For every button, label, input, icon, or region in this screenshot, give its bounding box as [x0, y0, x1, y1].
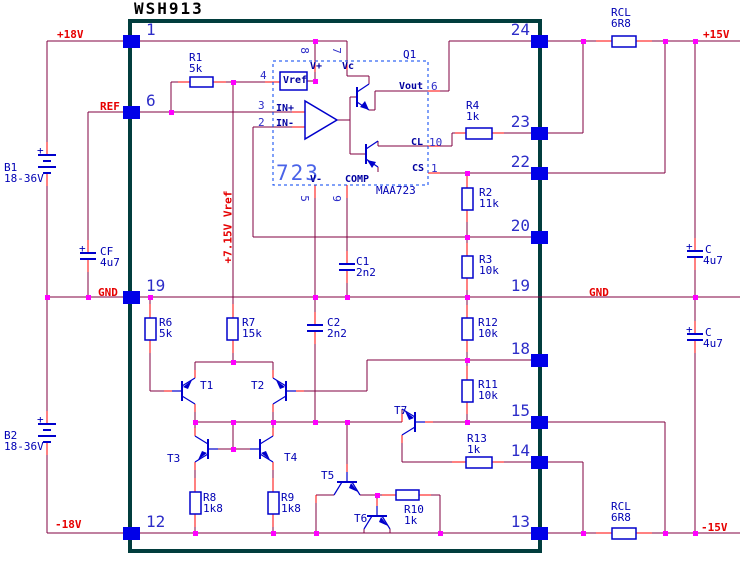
- ic-pin10-number: 10: [429, 137, 442, 148]
- junction-dot: [375, 493, 380, 498]
- junction-dot: [465, 171, 470, 176]
- junction-dot: [231, 360, 236, 365]
- opamp-triangle: [305, 101, 337, 139]
- battery-b2-plus: +: [37, 414, 44, 425]
- junction-dot: [663, 39, 668, 44]
- pin-square-18: [531, 354, 548, 367]
- pin-square-12: [123, 527, 140, 540]
- junction-dot: [271, 531, 276, 536]
- capacitor-c-upper-plus: +: [686, 241, 693, 252]
- pin-square-19-left: [123, 291, 140, 304]
- junction-dot: [231, 447, 236, 452]
- transistor-t4-label: T4: [284, 452, 297, 463]
- ic-vref-block-label: Vref: [283, 76, 307, 86]
- junction-dot: [313, 79, 318, 84]
- resistor-r2-value: 11k: [479, 198, 499, 209]
- ic-pin-vc-label: Vc: [342, 62, 354, 72]
- ic-pin-inminus-label: IN-: [276, 119, 294, 129]
- rail-label-plus15v: +15V: [703, 29, 730, 40]
- junction-dot: [345, 295, 350, 300]
- pin-number-6: 6: [146, 93, 156, 109]
- capacitor-c1-value: 2n2: [356, 267, 376, 278]
- transistor-t1: [172, 378, 195, 404]
- resistor-r3-value: 10k: [479, 265, 499, 276]
- capacitor-c2-value: 2n2: [327, 328, 347, 339]
- schematic-wsh913: WSH913 +18V REF GND -18V +15V GND -15V +…: [0, 0, 747, 567]
- junction-dot: [693, 39, 698, 44]
- pin-number-19-left: 19: [146, 278, 165, 294]
- pin-number-22: 22: [504, 154, 530, 170]
- rail-label-plus18v: +18V: [57, 29, 84, 40]
- pin-number-12: 12: [146, 514, 165, 530]
- pin-square-14: [531, 456, 548, 469]
- schematic-title: WSH913: [134, 1, 204, 17]
- resistor-r11: [462, 380, 473, 402]
- pin-square-23: [531, 127, 548, 140]
- junction-dot: [231, 80, 236, 85]
- ic-pin2-number: 2: [258, 117, 265, 128]
- junction-dot: [345, 420, 350, 425]
- junction-dot: [231, 420, 236, 425]
- junction-dot: [581, 39, 586, 44]
- pin-number-20: 20: [504, 218, 530, 234]
- junction-dot: [313, 295, 318, 300]
- transistor-t4: [250, 436, 273, 462]
- resistor-r8: [190, 492, 201, 514]
- ic-pin-inplus-label: IN+: [276, 104, 294, 114]
- junction-dot: [193, 420, 198, 425]
- pin-square-22: [531, 167, 548, 180]
- ic-pin9-number: 9: [331, 195, 342, 202]
- ic-part-label: MAA723: [376, 185, 416, 196]
- junction-dot: [465, 235, 470, 240]
- junction-dot: [465, 358, 470, 363]
- capacitor-c-upper-value: 4u7: [703, 255, 723, 266]
- pin-square-20: [531, 231, 548, 244]
- pin-number-18: 18: [504, 341, 530, 357]
- resistor-r4: [466, 128, 492, 139]
- capacitor-c-lower-plus: +: [686, 324, 693, 335]
- junction-dot: [693, 531, 698, 536]
- pin-number-13: 13: [504, 514, 530, 530]
- transistor-t7-label: T7: [394, 405, 407, 416]
- ic-pin3-number: 3: [258, 100, 265, 111]
- junction-dot: [465, 420, 470, 425]
- resistor-rcl-bot: [612, 528, 636, 539]
- transistor-t6-label: T6: [354, 513, 367, 524]
- rail-label-vref715: +7.15V Vref: [223, 204, 234, 264]
- ic-transistor-limit-arrow: [367, 160, 376, 168]
- rail-label-minus18v: -18V: [55, 519, 82, 530]
- rail-label-minus15v: -15V: [701, 522, 728, 533]
- battery-b2-value: 18-36V: [4, 441, 44, 452]
- junction-dot: [193, 531, 198, 536]
- ic-pin-vout-label: Vout: [399, 82, 423, 92]
- battery-b1-value: 18-36V: [4, 173, 44, 184]
- transistor-t5-label: T5: [321, 470, 334, 481]
- resistor-r2: [462, 188, 473, 210]
- rail-label-gnd-right: GND: [589, 287, 609, 298]
- resistor-r13: [466, 457, 492, 468]
- pin-square-13: [531, 527, 548, 540]
- ic-transistor-top: [357, 84, 369, 92]
- ic-pin7-number: 7: [331, 47, 342, 54]
- resistor-r6: [145, 318, 156, 340]
- resistor-r1: [190, 77, 213, 87]
- transistor-t1-label: T1: [200, 380, 213, 391]
- ic-pin5-number: 5: [299, 195, 310, 202]
- pin-square-6: [123, 106, 140, 119]
- junction-dot: [663, 531, 668, 536]
- pin-square-24: [531, 35, 548, 48]
- resistor-r7-value: 15k: [242, 328, 262, 339]
- transistor-t2: [273, 378, 296, 404]
- ic-pin-cs-label: CS: [412, 164, 424, 174]
- pin-number-24: 24: [504, 22, 530, 38]
- capacitor-cf-plus: +: [79, 243, 86, 254]
- ic-pin4-number: 4: [260, 70, 267, 81]
- transistor-t3-label: T3: [167, 453, 180, 464]
- resistor-rcl-bot-value: 6R8: [611, 512, 631, 523]
- junction-dot: [169, 110, 174, 115]
- resistor-r9: [268, 492, 279, 514]
- pin-square-15: [531, 416, 548, 429]
- pin-number-1: 1: [146, 22, 156, 38]
- junction-dot: [693, 295, 698, 300]
- capacitor-c-lower-value: 4u7: [703, 338, 723, 349]
- junction-dot: [45, 295, 50, 300]
- ic-transistor-limit: [366, 141, 378, 149]
- transistor-t6: [364, 506, 390, 529]
- pin-number-15: 15: [504, 403, 530, 419]
- junction-dot: [314, 531, 319, 536]
- resistor-r11-value: 10k: [478, 390, 498, 401]
- ic-transistor-top-arrow: [360, 101, 369, 110]
- junction-dot: [86, 295, 91, 300]
- ic-pin8-number: 8: [299, 47, 310, 54]
- transistor-t3: [195, 436, 218, 462]
- pin-square-1: [123, 35, 140, 48]
- junction-dot: [581, 531, 586, 536]
- resistor-r10: [396, 490, 419, 500]
- capacitor-cf-value: 4u7: [100, 257, 120, 268]
- resistor-r12: [462, 318, 473, 340]
- rail-label-ref: REF: [100, 101, 120, 112]
- resistor-r1-value: 5k: [189, 63, 202, 74]
- ic-pin-vminus-label: V-: [310, 175, 322, 185]
- ic-pin-cl-label: CL: [411, 138, 423, 148]
- battery-b1-plus: +: [37, 145, 44, 156]
- pin-number-23: 23: [504, 114, 530, 130]
- resistor-r4-value: 1k: [466, 111, 479, 122]
- ic-pin1-number: 1: [431, 163, 438, 174]
- rail-label-gnd-left: GND: [98, 287, 118, 298]
- ic-pin6-number: 6: [431, 81, 438, 92]
- ic-q1-label: Q1: [403, 49, 416, 60]
- schematic-canvas: [0, 0, 747, 567]
- resistor-r7: [227, 318, 238, 340]
- resistor-rcl-top-value: 6R8: [611, 18, 631, 29]
- ic-pin-vplus-label: V+: [310, 62, 322, 72]
- resistor-r6-value: 5k: [159, 328, 172, 339]
- transistor-t5: [334, 472, 360, 495]
- junction-dot: [313, 420, 318, 425]
- pin-number-14: 14: [504, 443, 530, 459]
- junction-dot: [438, 531, 443, 536]
- pin-number-19-right: 19: [504, 278, 530, 294]
- junction-dot: [271, 420, 276, 425]
- junction-dot: [465, 295, 470, 300]
- junction-dot: [148, 295, 153, 300]
- resistor-r8-value: 1k8: [203, 503, 223, 514]
- resistor-r9-value: 1k8: [281, 503, 301, 514]
- resistor-r12-value: 10k: [478, 328, 498, 339]
- resistor-r3: [462, 256, 473, 278]
- junction-dot: [313, 39, 318, 44]
- ic-pin-comp-label: COMP: [345, 175, 369, 185]
- resistor-r10-value: 1k: [404, 515, 417, 526]
- resistor-r13-value: 1k: [467, 444, 480, 455]
- transistor-t2-label: T2: [251, 380, 264, 391]
- resistor-rcl-top: [612, 36, 636, 47]
